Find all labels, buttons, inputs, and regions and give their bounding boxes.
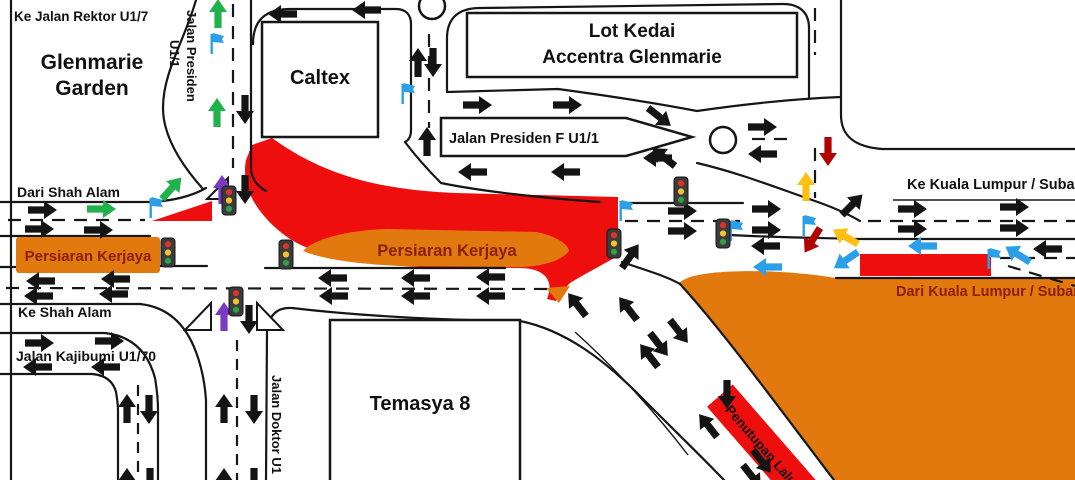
lotkedai-block-south-boundary: [447, 89, 841, 111]
blue-direction-arrow-icon: [1001, 239, 1035, 270]
green-direction-arrow-icon: [208, 98, 226, 127]
black-direction-arrow-icon: [668, 222, 697, 240]
label-ke-jalan-rektor: Ke Jalan Rektor U1/7: [14, 9, 148, 24]
black-direction-arrow-icon: [352, 1, 381, 19]
corner-island-southwest: [185, 303, 211, 330]
blue-flag-icon: [620, 200, 634, 221]
black-direction-arrow-icon: [318, 269, 347, 287]
black-direction-arrow-icon: [215, 468, 233, 480]
black-direction-arrow-icon: [748, 118, 777, 136]
black-direction-arrow-icon: [463, 96, 492, 114]
black-direction-arrow-icon: [118, 468, 136, 480]
label-jalan-kajibumi: Jalan Kajibumi U1/70: [16, 348, 156, 364]
keshahalam-bottom-edge: [0, 304, 206, 480]
jalan-doktor-right-edge: [266, 331, 267, 480]
label-glenmarie-garden-line1: Glenmarie: [41, 51, 144, 74]
black-direction-arrow-icon: [898, 200, 927, 218]
black-direction-arrow-icon: [748, 145, 777, 163]
black-direction-arrow-icon: [612, 292, 644, 326]
label-jalan-doktor: Jalan Doktor U1: [269, 375, 284, 474]
black-direction-arrow-icon: [458, 163, 487, 181]
label-glenmarie-garden-line2: Garden: [55, 77, 129, 100]
label-ke-kuala-lumpur: Ke Kuala Lumpur / Subang: [907, 177, 1075, 193]
black-direction-arrow-icon: [561, 288, 593, 322]
bypass-road-south-edge: [697, 163, 860, 221]
label-ke-shah-alam: Ke Shah Alam: [18, 304, 112, 320]
blue-flag-icon: [211, 33, 225, 54]
black-direction-arrow-icon: [28, 201, 57, 219]
black-direction-arrow-icon: [1033, 240, 1062, 258]
traffic-light-icon: [674, 177, 688, 206]
traffic-light-icon: [716, 219, 730, 248]
label-persiaran-kerjaya-center: Persiaran Kerjaya: [377, 242, 517, 260]
label-lot-kedai-line2: Accentra Glenmarie: [542, 47, 722, 68]
closure-zone-orange-southeast: [679, 271, 1075, 480]
traffic-light-icon: [161, 238, 175, 267]
kajibumi-bottom-edge: [0, 374, 118, 480]
black-direction-arrow-icon: [118, 394, 136, 423]
label-jalan-presiden-line1: Jalan Presiden: [184, 10, 199, 102]
label-temasya: Temasya 8: [370, 393, 471, 415]
black-direction-arrow-icon: [551, 163, 580, 181]
black-direction-arrow-icon: [401, 269, 430, 287]
yellow-direction-arrow-icon: [828, 222, 862, 252]
closure-zone-red-main: [245, 138, 618, 301]
diagonal-road-center-line: [575, 332, 688, 455]
black-direction-arrow-icon: [141, 468, 159, 480]
blue-direction-arrow-icon: [829, 245, 863, 276]
black-direction-arrow-icon: [245, 395, 263, 424]
black-direction-arrow-icon: [245, 468, 263, 480]
roundabout-circle-top: [419, 0, 445, 19]
black-direction-arrow-icon: [898, 220, 927, 238]
westbound-dash: [6, 288, 555, 289]
black-direction-arrow-icon: [751, 237, 780, 255]
black-direction-arrow-icon: [663, 314, 695, 348]
traffic-light-icon: [222, 186, 236, 215]
label-jalan-presiden-line2: U1/1: [167, 40, 182, 67]
black-direction-arrow-icon: [418, 127, 436, 156]
traffic-light-icon: [229, 287, 243, 316]
corner-island-southeast: [257, 303, 283, 330]
roundabout-circle-east: [710, 127, 736, 153]
label-jalan-presiden-f: Jalan Presiden F U1/1: [449, 131, 599, 147]
traffic-diversion-map: Penutupan Laluan Ke Jalan Rektor U1/7 Gl…: [0, 0, 1075, 480]
northeast-road-east-edge: [841, 0, 1075, 149]
blue-flag-icon: [988, 248, 1002, 269]
traffic-light-icon: [279, 240, 293, 269]
black-direction-arrow-icon: [268, 5, 297, 23]
label-caltex: Caltex: [290, 67, 350, 89]
map-svg: Penutupan Laluan Ke Jalan Rektor U1/7 Gl…: [0, 0, 1075, 480]
label-dari-kuala-lumpur: Dari Kuala Lumpur / Subang: [896, 284, 1075, 300]
blue-flag-icon: [150, 197, 164, 218]
black-direction-arrow-icon: [140, 395, 158, 424]
black-direction-arrow-icon: [215, 394, 233, 423]
black-direction-arrow-icon: [424, 48, 442, 77]
black-direction-arrow-icon: [476, 268, 505, 286]
label-dari-shah-alam: Dari Shah Alam: [17, 184, 120, 200]
closed-lane-red-rectangle: [860, 254, 991, 276]
dark_red-direction-arrow-icon: [797, 223, 828, 257]
green-direction-arrow-icon: [209, 0, 227, 28]
blue-flag-icon: [402, 83, 416, 104]
blue-flag-icon: [730, 220, 744, 241]
label-persiaran-kerjaya-left: Persiaran Kerjaya: [25, 248, 152, 265]
dark_red-direction-arrow-icon: [819, 137, 837, 166]
black-direction-arrow-icon: [24, 287, 53, 305]
label-lot-kedai-line1: Lot Kedai: [589, 21, 676, 42]
kl-westbound-top-edge: [730, 235, 1075, 239]
black-direction-arrow-icon: [553, 96, 582, 114]
black-direction-arrow-icon: [752, 200, 781, 218]
traffic-light-icon: [607, 229, 621, 258]
